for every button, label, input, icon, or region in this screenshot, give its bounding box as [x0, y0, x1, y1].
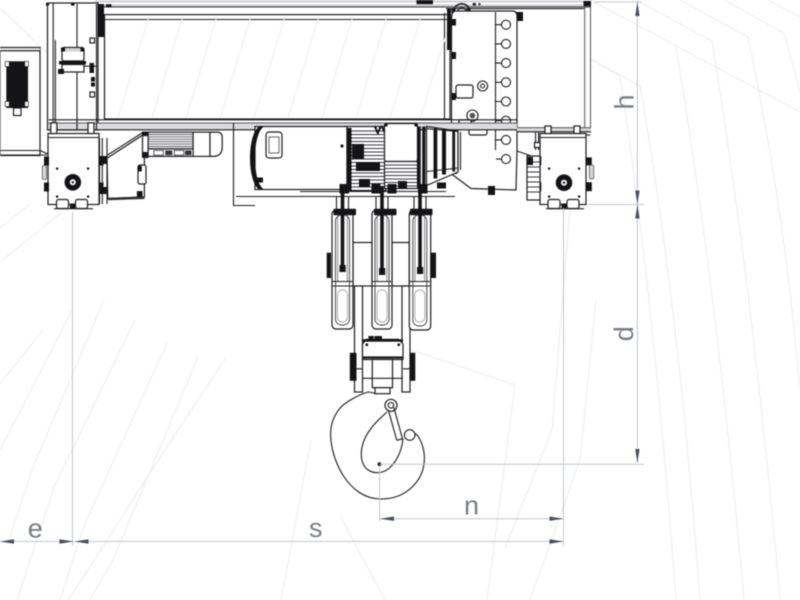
svg-text:e: e [28, 514, 43, 544]
svg-text:s: s [309, 513, 323, 543]
svg-text:d: d [609, 326, 639, 341]
svg-text:n: n [464, 491, 479, 521]
svg-text:h: h [609, 94, 639, 109]
